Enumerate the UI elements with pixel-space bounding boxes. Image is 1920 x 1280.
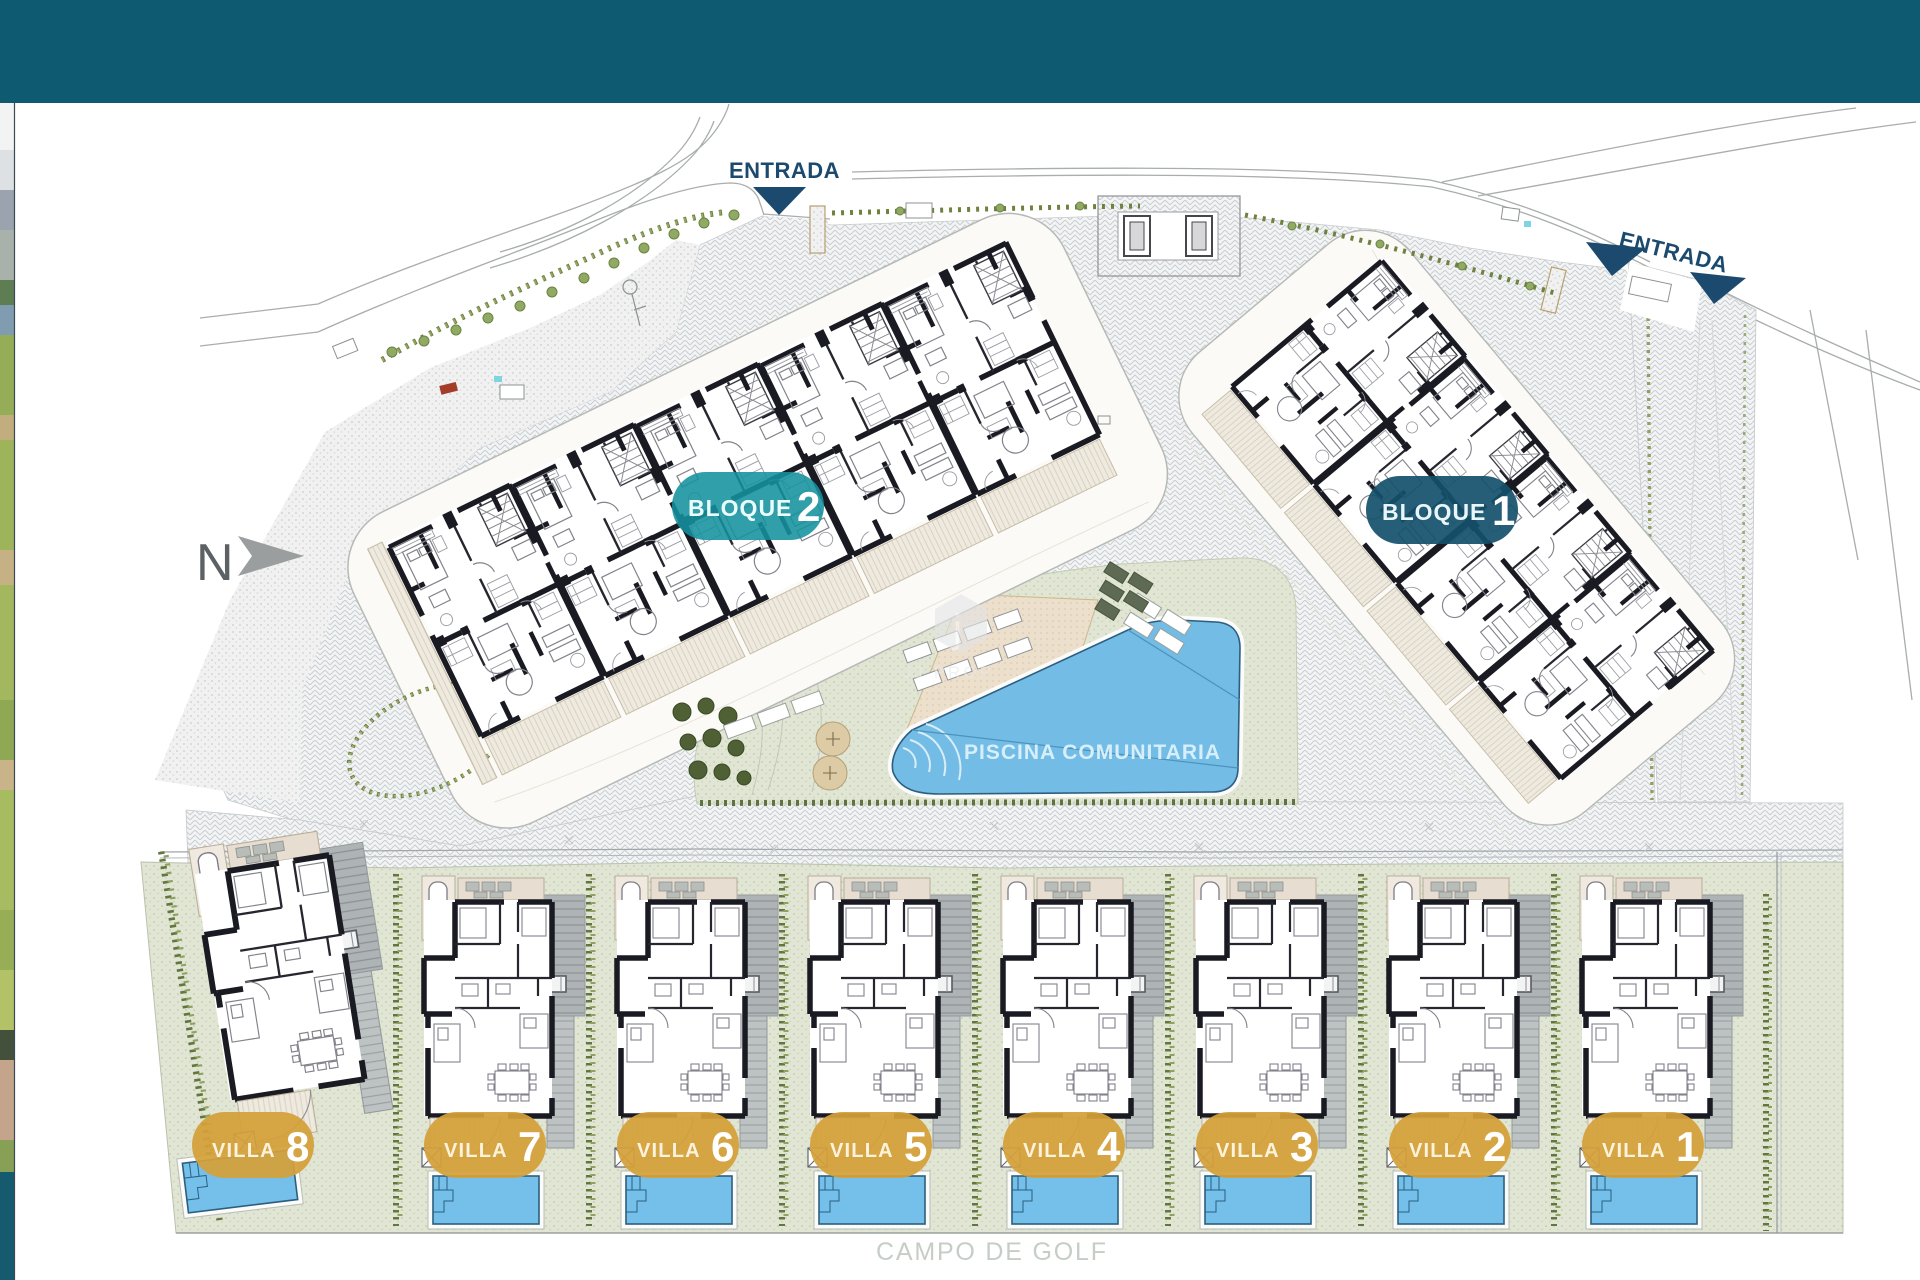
svg-text:JJ PROP: JJ PROP	[903, 663, 994, 682]
svg-text:VILLA: VILLA	[830, 1140, 894, 1162]
svg-text:j: j	[952, 607, 962, 651]
svg-text:8: 8	[286, 1123, 309, 1170]
svg-text:PISCINA COMUNITARIA: PISCINA COMUNITARIA	[964, 741, 1221, 764]
svg-text:1: 1	[1492, 487, 1515, 534]
svg-text:4: 4	[1097, 1123, 1121, 1170]
svg-text:VILLA: VILLA	[1216, 1140, 1280, 1162]
svg-text:VILLA: VILLA	[1409, 1140, 1473, 1162]
svg-text:BLOQUE: BLOQUE	[1382, 499, 1486, 525]
svg-text:3: 3	[1290, 1123, 1313, 1170]
svg-text:6: 6	[711, 1123, 734, 1170]
svg-text:VILLA: VILLA	[212, 1140, 276, 1162]
svg-text:7: 7	[518, 1123, 541, 1170]
svg-text:2: 2	[1483, 1123, 1506, 1170]
svg-text:BLOQUE: BLOQUE	[688, 495, 792, 521]
svg-text:ENTRADA: ENTRADA	[729, 158, 840, 183]
svg-text:N: N	[196, 534, 234, 592]
svg-text:2: 2	[797, 483, 820, 530]
svg-text:1: 1	[1676, 1123, 1699, 1170]
svg-text:VILLA: VILLA	[444, 1140, 508, 1162]
svg-text:CAMPO DE GOLF: CAMPO DE GOLF	[876, 1238, 1108, 1266]
svg-text:VILLA: VILLA	[1023, 1140, 1087, 1162]
svg-text:VILLA: VILLA	[1602, 1140, 1666, 1162]
svg-text:VILLA: VILLA	[637, 1140, 701, 1162]
svg-text:5: 5	[904, 1123, 927, 1170]
